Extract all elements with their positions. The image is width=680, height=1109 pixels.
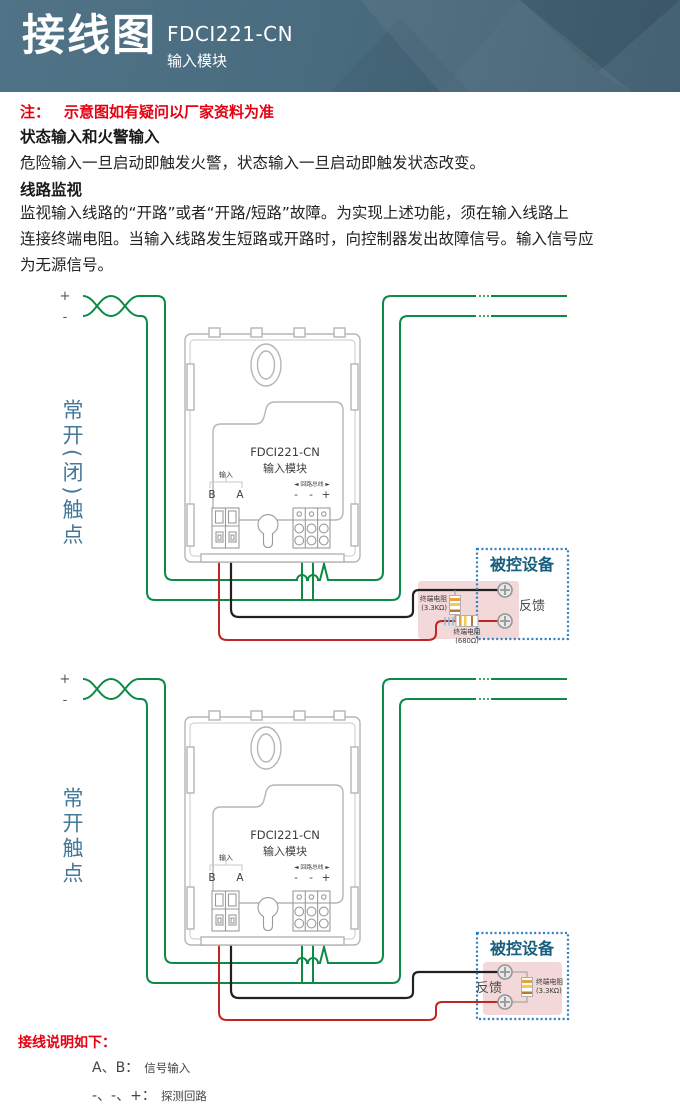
svg-text:终端电阻: 终端电阻 [453, 627, 480, 636]
screw-terminal-bottom-1 [498, 614, 512, 628]
legend-line-1: A、B： 信号输入 [92, 1057, 190, 1077]
minus-label-2: - [63, 693, 68, 708]
wiring-diagram-1: + - FDCI221-CN 输入模块 输入 B A ◄ 回路总线 ► [0, 280, 680, 655]
section-heading-monitoring: 线路监视 [20, 178, 82, 200]
section-body-monitoring: 监视输入线路的“开路”或者“开路/短路”故障。为实现上述功能，须在输入线路上 连… [20, 200, 594, 278]
page: { "header": { "title": "接线图", "model": "… [0, 0, 680, 1109]
controlled-device-title-2: 被控设备 [490, 939, 555, 958]
svg-text:-: - [294, 872, 298, 884]
screw-terminal-top-1 [498, 583, 512, 597]
loop-bus-label-1: ◄ 回路总线 ► [294, 480, 330, 488]
input-terminal-block-2 [212, 891, 239, 931]
terminal-a-label-1: A [236, 489, 244, 501]
input-terminals-label-2: 输入 [219, 853, 233, 862]
minus-label-1: - [63, 310, 68, 325]
page-title: 接线图 [22, 13, 157, 60]
svg-text:-: - [294, 489, 298, 501]
svg-text:(680Ω): (680Ω) [455, 637, 479, 645]
terminal-b-label-2: B [208, 872, 215, 884]
loop-bus-label-2: ◄ 回路总线 ► [294, 863, 330, 871]
svg-text:(3.3KΩ): (3.3KΩ) [421, 604, 447, 612]
input-terminal-block-1 [212, 508, 239, 548]
module-name-text-1: 输入模块 [263, 461, 307, 475]
terminal-a-label-2: A [236, 872, 244, 884]
svg-text:+: + [322, 872, 331, 884]
product-name: 输入模块 [167, 50, 227, 71]
module-model-text-2: FDCI221-CN [250, 828, 320, 842]
legend-val-loop: 探测回路 [161, 1089, 207, 1103]
legend-key-ab: A、B： [92, 1060, 139, 1076]
screw-terminal-bottom-2 [498, 995, 512, 1009]
loop-terminal-block-2 [293, 891, 330, 931]
svg-text:+: + [322, 489, 331, 501]
input-module-1: FDCI221-CN 输入模块 输入 B A ◄ 回路总线 ► - - + [185, 328, 360, 562]
note-text: 示意图如有疑问以厂家资料为准 [64, 103, 274, 121]
feedback-label-1: 反馈 [519, 599, 545, 614]
header-banner: 接线图 FDCI221-CN 输入模块 [0, 0, 680, 92]
section-body-inputs: 危险输入一旦启动即触发火警，状态输入一旦启动即触发状态改变。 [20, 151, 485, 173]
feedback-label-2: 反馈 [476, 981, 502, 996]
input-module-2: FDCI221-CN 输入模块 输入 B A ◄ 回路总线 ► - - + [185, 711, 360, 945]
controlled-device-title-1: 被控设备 [490, 555, 555, 574]
signal-wire-a-2 [231, 945, 498, 998]
svg-text:终端电阻: 终端电阻 [536, 977, 563, 986]
monitoring-line-2: 连接终端电阻。当输入线路发生短路或开路时，向控制器发出故障信号。输入信号应 [20, 226, 594, 252]
svg-text:(3.3KΩ): (3.3KΩ) [536, 987, 562, 995]
section-heading-inputs: 状态输入和火警输入 [20, 125, 160, 147]
loop-terminal-block-1 [293, 508, 330, 548]
screw-terminal-top-2 [498, 965, 512, 979]
note-prefix: 注： [20, 103, 50, 121]
monitoring-line-1: 监视输入线路的“开路”或者“开路/短路”故障。为实现上述功能，须在输入线路上 [20, 200, 594, 226]
legend-title: 接线说明如下： [18, 1032, 116, 1052]
legend-line-2: -、-、+： 探测回路 [92, 1085, 207, 1105]
plus-label-1: + [60, 289, 71, 304]
module-model-text-1: FDCI221-CN [250, 445, 320, 459]
monitoring-line-3: 为无源信号。 [20, 252, 594, 278]
wiring-diagram-2: + - FDCI221-CN 输入模块 输入 B A ◄ 回路总线 ► - - [0, 663, 680, 1031]
input-terminals-label-1: 输入 [219, 470, 233, 479]
svg-text:-: - [309, 489, 313, 501]
legend-val-signal: 信号输入 [144, 1061, 190, 1075]
legend-key-loop: -、-、+： [92, 1088, 156, 1104]
module-name-text-2: 输入模块 [263, 844, 307, 858]
plus-label-2: + [60, 672, 71, 687]
svg-text:终端电阻: 终端电阻 [420, 594, 447, 603]
svg-text:-: - [309, 872, 313, 884]
disclaimer-note: 注：示意图如有疑问以厂家资料为准 [20, 101, 274, 122]
terminal-b-label-1: B [208, 489, 215, 501]
product-model: FDCI221-CN [167, 22, 293, 46]
